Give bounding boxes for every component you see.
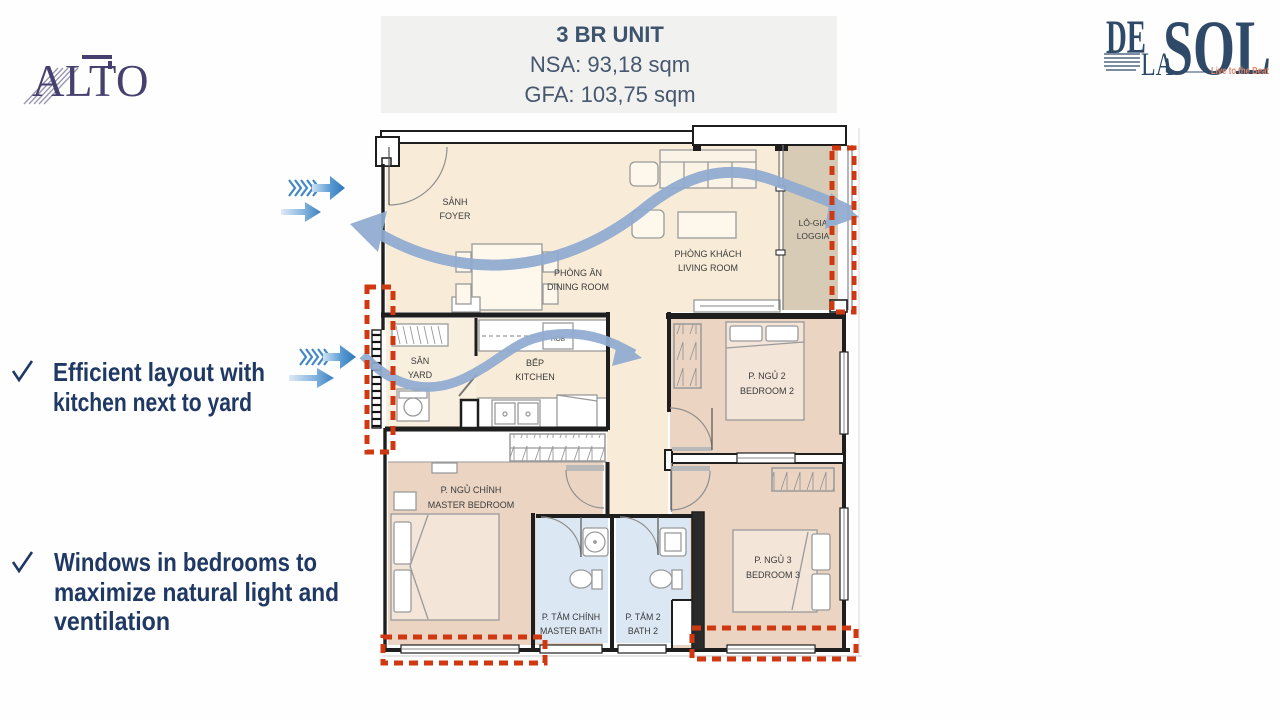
svg-text:LÔ-GIA: LÔ-GIA: [799, 218, 828, 228]
svg-text:FOYER: FOYER: [439, 211, 471, 221]
svg-text:KITCHEN: KITCHEN: [515, 372, 555, 382]
svg-text:P. TẮM CHÍNH: P. TẮM CHÍNH: [542, 612, 600, 622]
svg-text:DE: DE: [1106, 11, 1146, 64]
svg-text:BẾP: BẾP: [526, 358, 544, 368]
svg-text:SOL: SOL: [1163, 4, 1271, 91]
svg-text:BEDROOM 2: BEDROOM 2: [740, 386, 794, 396]
svg-text:SÂN: SÂN: [411, 356, 430, 366]
svg-text:BATH 2: BATH 2: [628, 626, 658, 636]
svg-text:Live to the Beat: Live to the Beat: [1211, 66, 1270, 77]
svg-text:P. NGỦ 2: P. NGỦ 2: [748, 370, 785, 381]
svg-text:GFA: 103,75 sqm: GFA: 103,75 sqm: [524, 82, 695, 107]
svg-text:LOGGIA: LOGGIA: [797, 231, 830, 241]
svg-text:BEDROOM 3: BEDROOM 3: [746, 570, 800, 580]
svg-text:SẢNH: SẢNH: [442, 196, 467, 207]
svg-text:MASTER BATH: MASTER BATH: [540, 626, 602, 636]
svg-text:P. NGỦ CHÍNH: P. NGỦ CHÍNH: [441, 484, 502, 495]
svg-text:P. NGỦ 3: P. NGỦ 3: [754, 554, 791, 565]
svg-text:3 BR UNIT: 3 BR UNIT: [556, 22, 664, 47]
svg-text:PHÒNG ĂN: PHÒNG ĂN: [554, 268, 602, 278]
svg-text:DINING ROOM: DINING ROOM: [547, 282, 609, 292]
svg-text:YARD: YARD: [408, 370, 433, 380]
svg-text:ALTO: ALTO: [32, 56, 149, 106]
svg-text:LIVING ROOM: LIVING ROOM: [678, 263, 738, 273]
svg-text:PHÒNG KHÁCH: PHÒNG KHÁCH: [674, 249, 741, 259]
svg-text:P. TẮM 2: P. TẮM 2: [625, 612, 660, 622]
svg-text:kitchen next to yard: kitchen next to yard: [53, 387, 252, 417]
svg-text:MASTER BEDROOM: MASTER BEDROOM: [428, 500, 515, 510]
svg-text:Windows in bedrooms to: Windows in bedrooms to: [54, 547, 317, 577]
svg-text:maximize natural light and: maximize natural light and: [54, 577, 339, 607]
svg-text:NSA: 93,18 sqm: NSA: 93,18 sqm: [530, 52, 690, 77]
svg-text:ventilation: ventilation: [54, 606, 170, 636]
svg-text:Efficient layout with: Efficient layout with: [53, 357, 265, 387]
